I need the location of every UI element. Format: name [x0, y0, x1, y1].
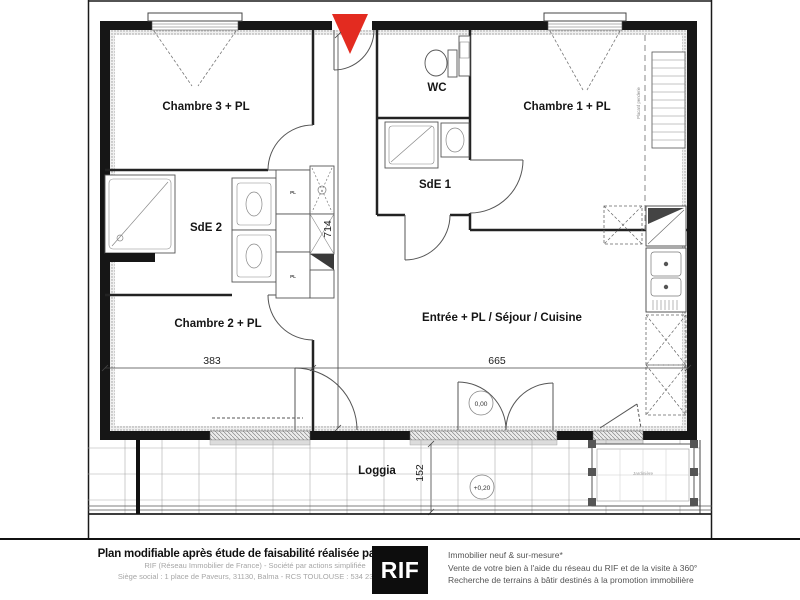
footer-service-line2: Vente de votre bien à l'aide du réseau d… [448, 562, 697, 575]
dim-loggia-depth: 152 [414, 464, 426, 482]
jardiniere-planter: Jardinière [588, 440, 698, 506]
closet-label-pl-bottom: PL [290, 274, 296, 279]
room-label-chambre1: Chambre 1 + PL [523, 101, 610, 113]
footer: Plan modifiable après étude de faisabili… [0, 538, 800, 600]
footer-right-block: Immobilier neuf & sur-mesure* Vente de v… [448, 549, 697, 587]
room-label-sejour: Entrée + PL / Séjour / Cuisine [422, 312, 582, 324]
level-interior: 0,00 [475, 401, 488, 408]
room-label-wc: WC [427, 82, 446, 94]
chambre1-closet: Placard penderie [636, 35, 685, 230]
window-shutter-box [544, 13, 626, 21]
room-label-chambre2: Chambre 2 + PL [174, 318, 261, 330]
kitchen-units [604, 206, 686, 415]
shower-tray [385, 122, 438, 168]
central-furniture-block [232, 166, 334, 298]
footer-service-line1: Immobilier neuf & sur-mesure* [448, 549, 697, 562]
rif-logo: RIF [372, 546, 428, 594]
rif-logo-text: RIF [381, 557, 420, 584]
closet-label-pl-top: PL [290, 190, 296, 195]
kitchen-sink-unit [646, 248, 686, 312]
room-label-sde1: SdE 1 [419, 179, 452, 191]
loggia-divider [136, 440, 140, 514]
floor-plan-drawing: Placard penderie 383 665 714 0,00 [0, 0, 800, 538]
sde1-fixtures [385, 122, 469, 168]
wc-fixtures [425, 36, 470, 77]
room-label-sde2: SdE 2 [190, 222, 222, 234]
closet-note-label: Placard penderie [636, 87, 641, 119]
toilet-tank [448, 50, 457, 77]
window-shutter-box [148, 13, 242, 21]
room-label-loggia: Loggia [358, 465, 396, 477]
level-loggia: +0,20 [474, 485, 491, 492]
room-label-jardiniere: Jardinière [633, 471, 654, 476]
toilet-bowl [425, 50, 447, 76]
floor-plan-sheet: Placard penderie 383 665 714 0,00 [0, 0, 800, 600]
footer-service-line3: Recherche de terrains à bâtir destinés à… [448, 574, 697, 587]
room-label-chambre3: Chambre 3 + PL [162, 101, 249, 113]
sde2-shower [105, 175, 175, 262]
dim-depth: 714 [322, 220, 334, 238]
dim-sejour-width: 665 [488, 355, 506, 367]
level-markers: 0,00 [469, 391, 493, 415]
dim-chambre2-width: 383 [203, 355, 221, 367]
loggia: +0,20 152 Jardinière [88, 440, 712, 514]
